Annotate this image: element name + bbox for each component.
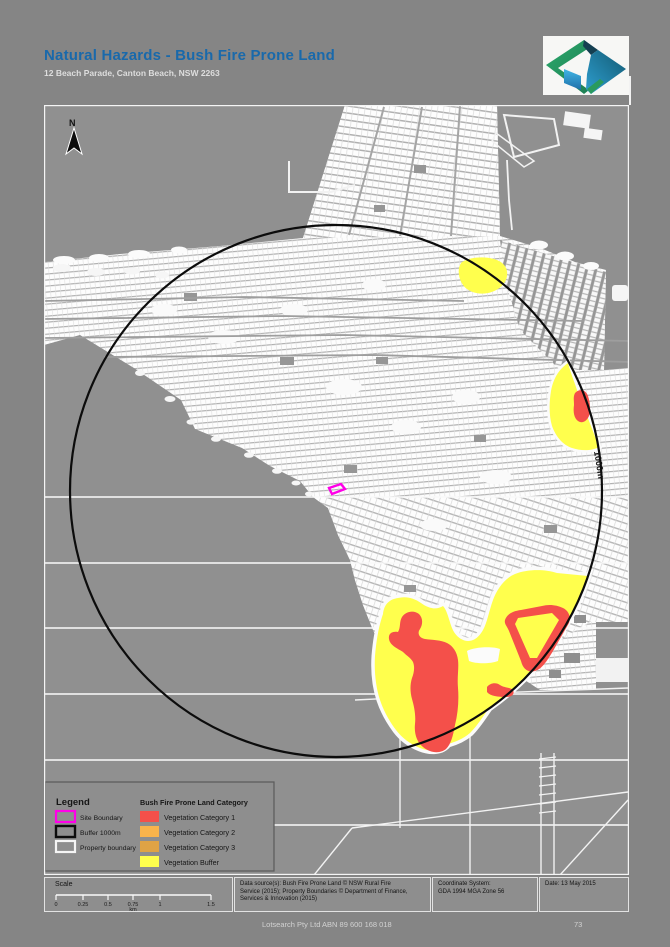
svg-text:0.5: 0.5	[104, 902, 112, 908]
svg-text:1.5: 1.5	[207, 902, 215, 908]
svg-text:Vegetation Buffer: Vegetation Buffer	[164, 858, 220, 867]
svg-text:Vegetation Category 1: Vegetation Category 1	[164, 813, 235, 822]
svg-text:Buffer 1000m: Buffer 1000m	[80, 830, 121, 837]
svg-text:Site Boundary: Site Boundary	[80, 815, 123, 822]
svg-text:1: 1	[158, 902, 161, 908]
svg-text:0: 0	[54, 902, 57, 908]
svg-text:Property boundary: Property boundary	[80, 845, 137, 852]
svg-text:Vegetation Category 2: Vegetation Category 2	[164, 828, 235, 837]
svg-text:Vegetation Category 3: Vegetation Category 3	[164, 843, 235, 852]
svg-text:0.25: 0.25	[78, 902, 89, 908]
svg-text:N: N	[69, 118, 76, 128]
svg-text:Legend: Legend	[56, 797, 90, 808]
svg-text:km: km	[129, 907, 137, 911]
svg-text:Bush Fire Prone Land Category: Bush Fire Prone Land Category	[140, 798, 248, 807]
